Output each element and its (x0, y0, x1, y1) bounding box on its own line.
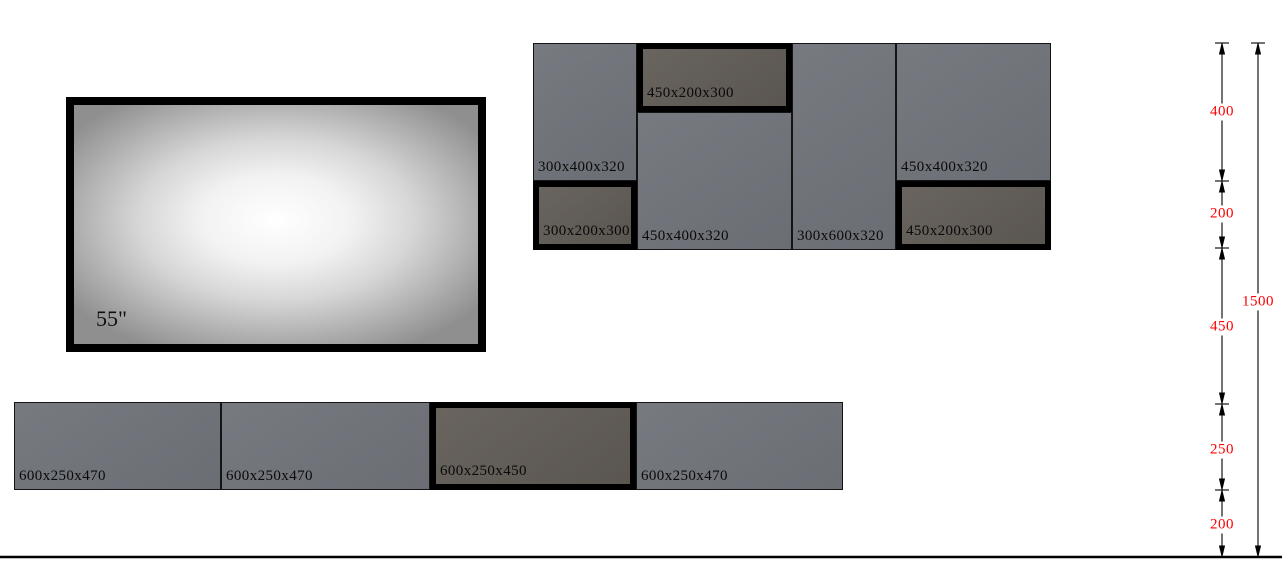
base-unit-600x250x470-2: 600x250x470 (221, 402, 430, 490)
tv-screen: 55" (74, 105, 478, 344)
wall-unit-300x400x320: 300x400x320 (533, 43, 637, 181)
unit-dimension-label: 600x250x470 (19, 468, 106, 485)
unit-dimension-label: 600x250x470 (226, 468, 313, 485)
unit-dimension-label: 450x200x300 (647, 85, 734, 102)
unit-dimension-label: 300x400x320 (538, 159, 625, 176)
dimension-value-400: 400 (1208, 104, 1236, 121)
dimension-value-450: 450 (1208, 319, 1236, 336)
dimension-value-250: 250 (1208, 442, 1236, 459)
drawing-canvas: 55" 300x400x320 300x200x300 450x200x300 … (0, 0, 1282, 570)
dimension-value-200-upper: 200 (1208, 206, 1236, 223)
wall-unit-300x200x300-highlighted: 300x200x300 (533, 181, 637, 250)
base-unit-600x250x450-highlighted: 600x250x450 (430, 402, 636, 490)
unit-dimension-label: 600x250x470 (641, 468, 728, 485)
base-unit-600x250x470-3: 600x250x470 (636, 402, 843, 490)
unit-dimension-label: 300x600x320 (797, 228, 884, 245)
tv-size-label: 55" (96, 306, 127, 332)
tv-55-inch: 55" (66, 97, 486, 352)
unit-dimension-label: 450x400x320 (901, 159, 988, 176)
wall-unit-450x200x300-highlighted: 450x200x300 (637, 43, 792, 112)
unit-dimension-label: 450x200x300 (906, 223, 993, 240)
unit-dimension-label: 600x250x450 (440, 463, 527, 480)
dimension-value-200-lower: 200 (1208, 517, 1236, 534)
wall-unit-450x400x320: 450x400x320 (637, 112, 792, 250)
wall-unit-300x600x320: 300x600x320 (792, 43, 896, 250)
unit-dimension-label: 300x200x300 (543, 223, 630, 240)
unit-dimension-label: 450x400x320 (642, 228, 729, 245)
base-unit-600x250x470-1: 600x250x470 (14, 402, 221, 490)
dimension-value-1500-total: 1500 (1240, 294, 1276, 311)
wall-unit-450x200x300-right-highlighted: 450x200x300 (896, 181, 1051, 250)
wall-unit-450x400x320-right: 450x400x320 (896, 43, 1051, 181)
